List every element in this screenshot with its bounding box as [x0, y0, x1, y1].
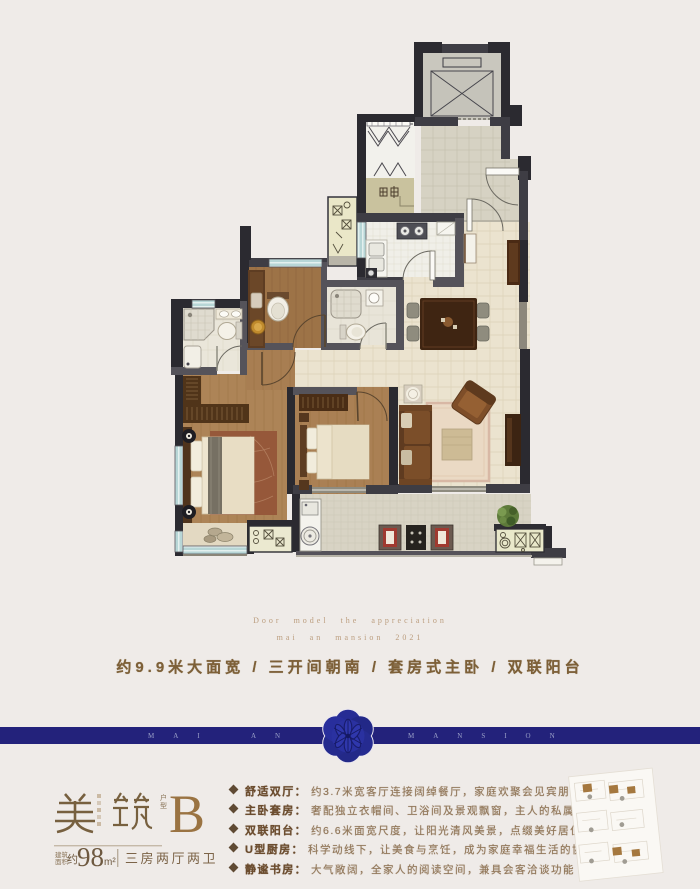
svg-text:m²: m²: [104, 857, 116, 868]
svg-text:B: B: [169, 785, 205, 844]
svg-text:三房两厅两卫: 三房两厅两卫: [125, 851, 218, 866]
svg-text:户: 户: [160, 793, 167, 802]
svg-text:98: 98: [77, 842, 104, 872]
svg-text:型: 型: [160, 801, 167, 810]
